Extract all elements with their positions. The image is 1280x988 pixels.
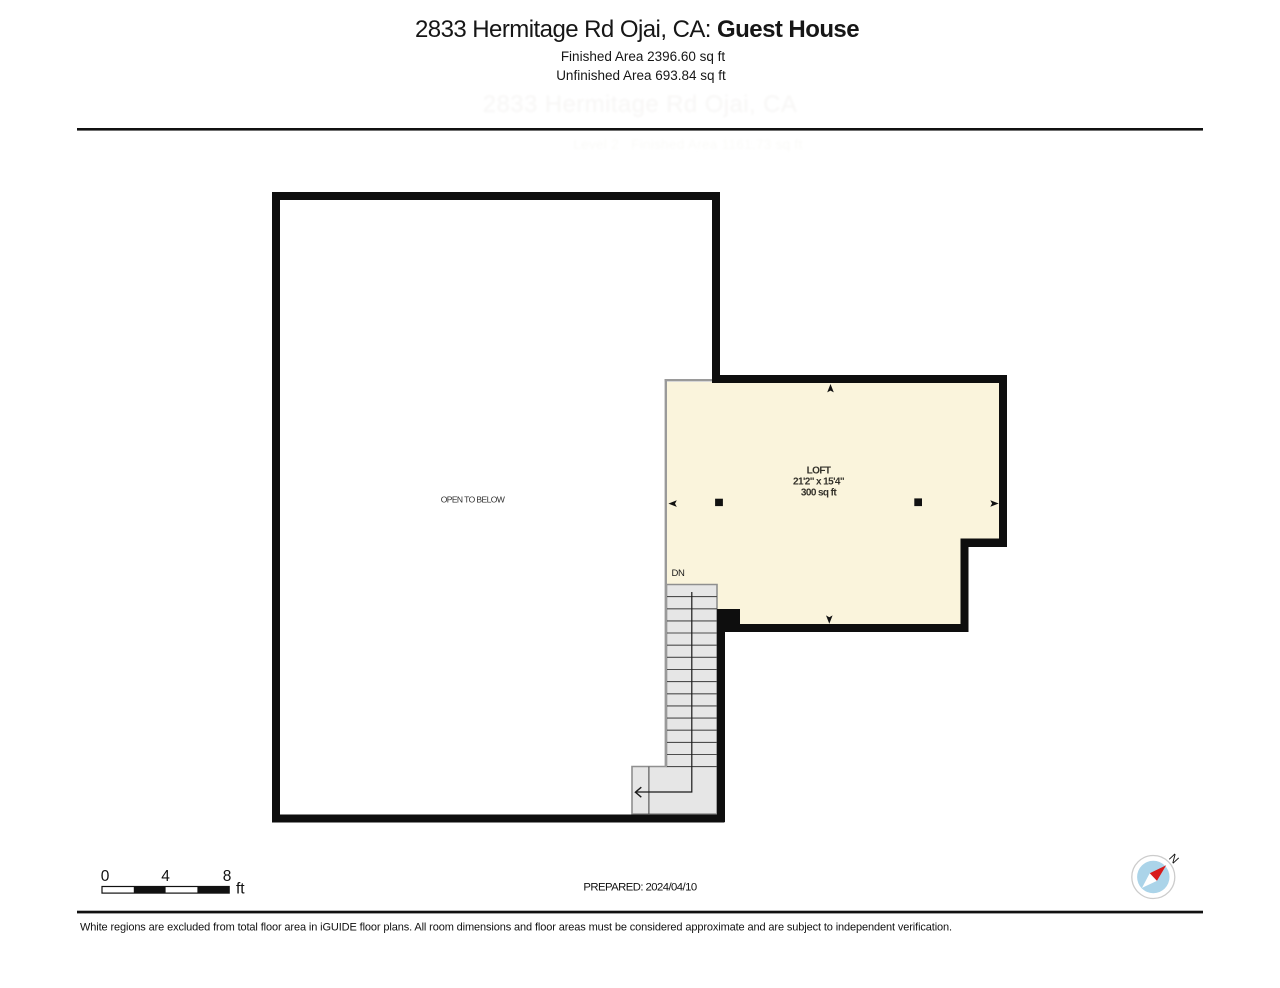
- svg-text:DN: DN: [672, 568, 686, 579]
- svg-text:White regions are excluded fro: White regions are excluded from total fl…: [80, 922, 952, 934]
- svg-text:PREPARED: 2024/04/10: PREPARED: 2024/04/10: [583, 882, 696, 894]
- svg-text:21'2" x 15'4": 21'2" x 15'4": [793, 477, 845, 488]
- svg-text:0: 0: [101, 868, 110, 885]
- svg-text:ft: ft: [236, 881, 245, 898]
- svg-text:2833 Hermitage Rd Ojai, CA: 2833 Hermitage Rd Ojai, CA: [483, 91, 798, 118]
- svg-text:OPEN TO BELOW: OPEN TO BELOW: [441, 495, 505, 505]
- svg-text:8: 8: [223, 868, 232, 885]
- svg-text:Finished Area 2396.60 sq ft: Finished Area 2396.60 sq ft: [561, 49, 726, 64]
- svg-text:4: 4: [161, 868, 170, 885]
- svg-text:Unfinished Area 693.84 sq ft: Unfinished Area 693.84 sq ft: [556, 68, 726, 83]
- svg-text:2833 Hermitage Rd Ojai, CA: Gu: 2833 Hermitage Rd Ojai, CA: Guest House: [415, 16, 859, 43]
- svg-text:Level 2 Finished Area 1161.7: Level 2 Finished Area 1161.73 sq ft: [573, 137, 802, 152]
- svg-text:300 sq ft: 300 sq ft: [801, 488, 837, 499]
- svg-text:LOFT: LOFT: [807, 466, 831, 477]
